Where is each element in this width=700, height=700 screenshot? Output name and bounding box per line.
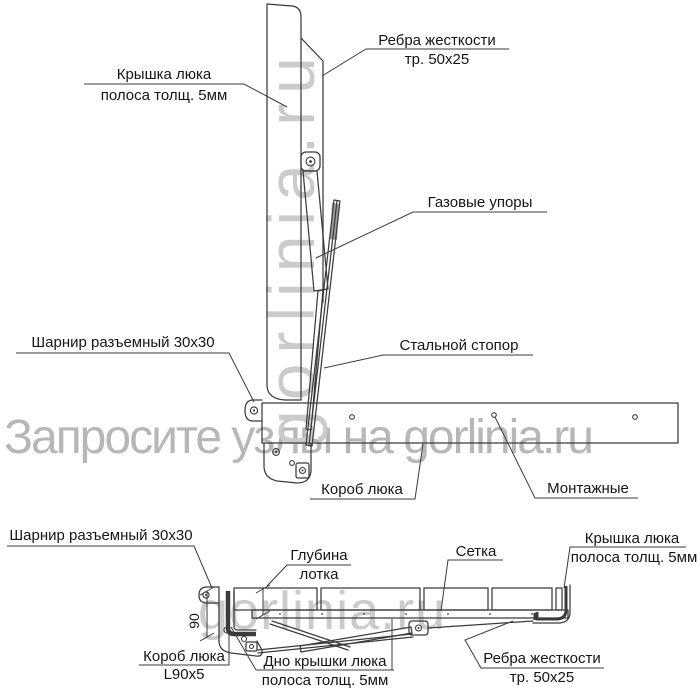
label-stopper: Стальной стопор — [324, 337, 533, 368]
label-ribs-top: Ребра жесткости тр. 50x25 — [322, 32, 509, 76]
dimension-90: 90 — [186, 587, 214, 641]
svg-text:Глубина: Глубина — [290, 547, 348, 564]
svg-text:Стальной стопор: Стальной стопор — [400, 337, 519, 354]
label-cover-bottom-right: Крышка люка полоса толщ. 5мм — [564, 530, 697, 588]
hatch-drawing-svg: Ребра жесткости тр. 50x25 Крышка люка по… — [0, 0, 700, 700]
svg-text:L90x5: L90x5 — [164, 666, 205, 683]
svg-text:Короб люка: Короб люка — [321, 481, 403, 498]
svg-text:Газовые упоры: Газовые упоры — [428, 194, 533, 211]
svg-text:Короб люка: Короб люка — [143, 648, 225, 665]
svg-text:Монтажные: Монтажные — [547, 480, 629, 497]
label-cover-top: Крышка люка полоса толщ. 5мм — [84, 66, 287, 107]
hatch-cover-panel — [267, 4, 323, 400]
svg-text:лотка: лотка — [299, 566, 339, 583]
lower-bracket — [264, 443, 311, 483]
svg-text:полоса толщ. 5мм: полоса толщ. 5мм — [571, 549, 698, 566]
label-depth: Глубина лотка — [267, 547, 351, 586]
svg-text:90: 90 — [186, 613, 202, 629]
svg-text:Шарнир разъемный 30x30: Шарнир разъемный 30x30 — [9, 527, 192, 544]
strut-rod — [306, 290, 323, 430]
mounting-hole — [350, 415, 355, 420]
svg-text:полоса толщ. 5мм: полоса толщ. 5мм — [101, 87, 228, 104]
label-hinge-bottom: Шарнир разъемный 30x30 — [7, 527, 212, 588]
svg-text:Ребра жесткости: Ребра жесткости — [378, 32, 496, 49]
label-mounting: Монтажные — [495, 417, 638, 498]
label-box-top: Короб люка — [310, 444, 423, 499]
bottom-view-labels: Шарнир разъемный 30x30 Глубина лотка Сет… — [7, 527, 697, 689]
mesh-strip — [234, 588, 562, 610]
svg-text:Дно крышки люка: Дно крышки люка — [263, 653, 387, 670]
label-box-bottom: Короб люка L90x5 — [139, 632, 229, 683]
svg-text:Сетка: Сетка — [456, 543, 497, 560]
svg-text:Крышка люка: Крышка люка — [117, 66, 212, 83]
technical-drawing-page: Запросите узлы на gorlinia.ru gorlinia.r… — [0, 0, 700, 700]
svg-text:Шарнир разъемный 30x30: Шарнир разъемный 30x30 — [31, 334, 214, 351]
svg-text:полоса толщ. 5мм: полоса толщ. 5мм — [262, 672, 389, 689]
label-hinge-top: Шарнир разъемный 30x30 — [16, 334, 254, 402]
label-gas-struts: Газовые упоры — [316, 194, 547, 258]
dimension-depth-ticks — [256, 585, 270, 619]
mounting-hole — [633, 415, 638, 420]
svg-text:тр. 50x25: тр. 50x25 — [405, 51, 469, 68]
label-mesh: Сетка — [441, 543, 503, 611]
svg-text:Ребра жесткости: Ребра жесткости — [483, 650, 601, 667]
strut-cylinder — [303, 171, 328, 291]
cover-bottom-plate — [252, 610, 568, 618]
svg-text:тр. 50x25: тр. 50x25 — [510, 669, 574, 686]
mounting-hole — [492, 413, 497, 418]
top-view-open-hatch: Ребра жесткости тр. 50x25 Крышка люка по… — [16, 4, 678, 499]
bottom-view-closed-hatch: 90 Шарнир разъемный 30x30 Глубина лотка — [7, 527, 697, 689]
svg-text:Крышка люка: Крышка люка — [585, 530, 680, 547]
label-ribs-bottom: Ребра жесткости тр. 50x25 — [465, 621, 604, 686]
